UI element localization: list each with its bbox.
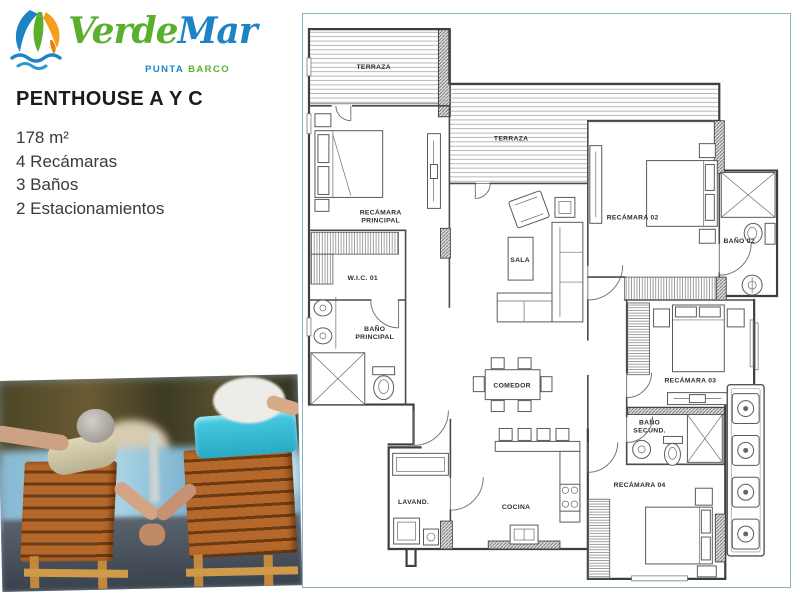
room-comedor: COMEDOR bbox=[473, 358, 552, 412]
room-label-recamara-02: RECÁMARA 02 bbox=[607, 212, 659, 221]
floorplan-panel: TERRAZA TERRAZA bbox=[302, 13, 791, 588]
room-label-bano-secundario: BAÑO bbox=[639, 417, 660, 426]
photo-left-chair bbox=[20, 461, 117, 561]
room-label-terraza-2: TERRAZA bbox=[494, 136, 528, 143]
room-label-cocina: COCINA bbox=[502, 504, 530, 511]
logo-wordmark: VerdeMar bbox=[68, 10, 257, 52]
logo-word-mar: Mar bbox=[178, 10, 257, 52]
room-label-bano-02: BAÑO 02 bbox=[723, 236, 754, 245]
room-label-terraza-1: TERRAZA bbox=[356, 64, 390, 71]
spec-bedrooms: 4 Recámaras bbox=[16, 150, 164, 174]
room-sala: SALA bbox=[497, 190, 583, 321]
photo-right-chair bbox=[183, 445, 297, 559]
photo-holding-hands bbox=[139, 523, 165, 546]
room-wic-01: W.I.C. 01 bbox=[347, 275, 378, 282]
spec-list: 178 m² 4 Recámaras 3 Baños 2 Estacionami… bbox=[16, 126, 164, 220]
room-recamara-02: RECÁMARA 02 bbox=[590, 144, 717, 244]
room-bano-secundario: BAÑO SECUND. bbox=[633, 415, 723, 466]
room-label-recamara-04: RECÁMARA 04 bbox=[614, 480, 666, 489]
svg-text:PRINCIPAL: PRINCIPAL bbox=[361, 217, 400, 224]
logo-tagline: PUNTA BARCO bbox=[8, 64, 230, 75]
room-cocina: COCINA bbox=[495, 428, 580, 544]
room-label-recamara-03: RECÁMARA 03 bbox=[664, 376, 716, 385]
flyer-page: VerdeMar PUNTA BARCO PENTHOUSE A Y C 178… bbox=[0, 0, 800, 596]
verdemar-logo-icon bbox=[8, 6, 66, 72]
room-recamara-principal: RECÁMARA PRINCIPAL bbox=[315, 114, 440, 225]
room-label-lavanderia: LAVAND. bbox=[398, 499, 429, 506]
svg-text:PRINCIPAL: PRINCIPAL bbox=[355, 334, 394, 341]
room-label-sala: SALA bbox=[510, 257, 530, 264]
service-strip bbox=[727, 385, 764, 556]
pool-lounge-photo bbox=[0, 374, 302, 592]
spec-area: 178 m² bbox=[16, 126, 164, 150]
logo-word-verde: Verde bbox=[68, 10, 178, 52]
room-label-bano-principal: BAÑO bbox=[364, 324, 385, 333]
room-label-recamara-principal: RECÁMARA bbox=[360, 207, 402, 216]
room-label-comedor: COMEDOR bbox=[493, 383, 530, 390]
room-label-wic-01: W.I.C. 01 bbox=[347, 275, 378, 282]
room-bano-02: BAÑO 02 bbox=[721, 173, 775, 295]
spec-parking: 2 Estacionamientos bbox=[16, 197, 164, 221]
photo-pool-ladder bbox=[149, 432, 160, 502]
spec-bathrooms: 3 Baños bbox=[16, 173, 164, 197]
room-recamara-04: RECÁMARA 04 bbox=[614, 480, 717, 581]
page-title: PENTHOUSE A Y C bbox=[16, 88, 203, 111]
verdemar-logo: VerdeMar PUNTA BARCO bbox=[8, 4, 248, 84]
room-terraza-1: TERRAZA bbox=[309, 29, 450, 117]
room-bano-principal: BAÑO PRINCIPAL bbox=[311, 297, 395, 405]
photo-chair-rail bbox=[24, 569, 128, 578]
